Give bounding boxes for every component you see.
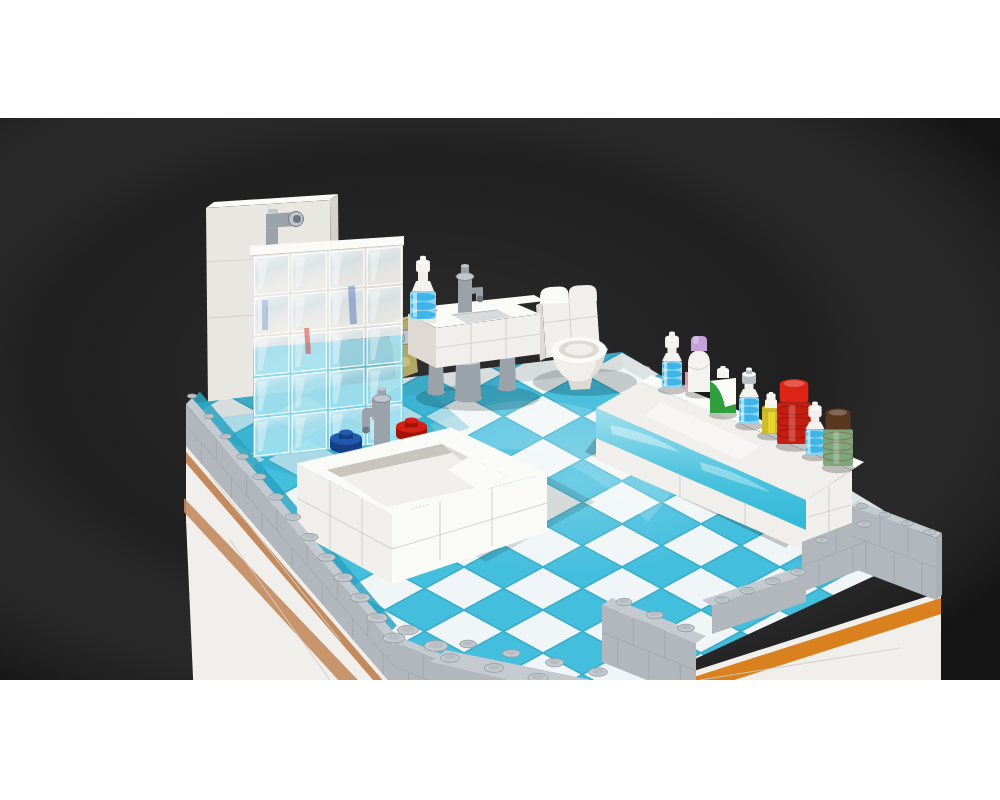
brick-stud-top <box>650 612 660 616</box>
brick-stud-top <box>255 474 263 477</box>
brick-stud-top <box>904 521 911 524</box>
bottle-green-jar <box>822 409 854 474</box>
brick-stud-top <box>488 665 500 670</box>
brick-stud-top <box>429 642 443 648</box>
brick-stud-top <box>321 554 332 559</box>
brick-stud-top <box>272 494 281 498</box>
brick-stud-top <box>743 588 752 592</box>
brick-stud-top <box>387 634 400 640</box>
brick-stud-top <box>305 534 315 538</box>
brick-stud-top <box>794 569 803 573</box>
brick-stud-top <box>239 454 246 457</box>
brick-stud-top <box>926 530 933 533</box>
brick-stud-top <box>532 675 544 680</box>
lego-render <box>0 0 1000 800</box>
brick-stud-top <box>354 594 366 599</box>
screenshot-root <box>0 0 1000 800</box>
brick-stud-top <box>592 669 603 674</box>
brick-stud-top <box>288 514 297 518</box>
brick-stud-top <box>402 626 415 631</box>
brick-stud-top <box>860 522 868 526</box>
brick-stud-top <box>463 641 473 645</box>
brick-stud-top <box>768 579 777 583</box>
brick-stud-top <box>371 614 384 619</box>
brick-stud-top <box>506 650 517 655</box>
brick-stud-top <box>549 660 560 665</box>
brick-stud-top <box>206 414 212 417</box>
brick-stud-top <box>444 655 455 660</box>
brick-stud-top <box>619 599 629 603</box>
brick-stud-top <box>818 538 826 541</box>
brick-stud-top <box>222 434 229 437</box>
brick-stud-top <box>681 625 691 629</box>
brick-stud-top <box>859 504 866 507</box>
brick-stud-top <box>338 574 349 579</box>
brick-stud-top <box>189 394 194 396</box>
brick-stud-top <box>881 513 888 516</box>
brick-stud-top <box>718 598 726 602</box>
